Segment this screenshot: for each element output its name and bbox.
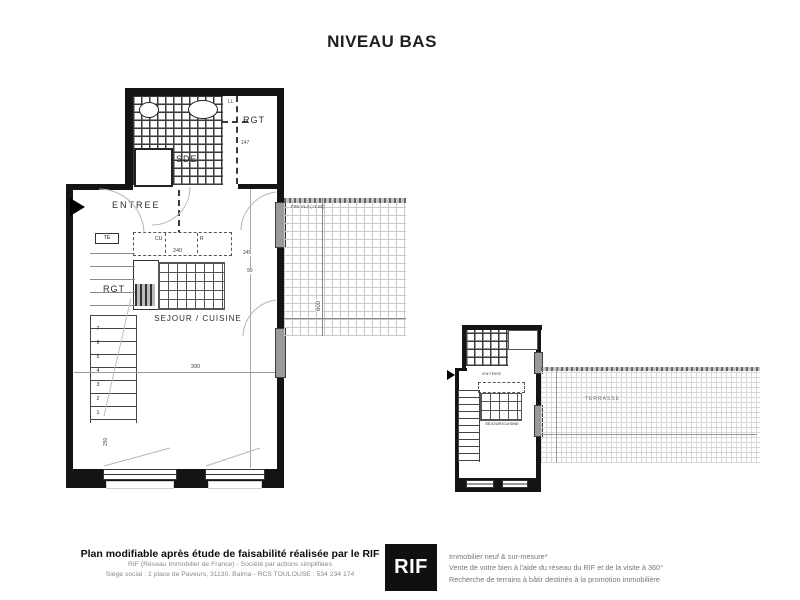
- footer-right-line1: Immobilier neuf & sur-mesure*: [449, 551, 759, 562]
- footer-company-line: RIF (Réseau Immobilier de France) - Soci…: [80, 560, 380, 570]
- small-window-right: [502, 480, 528, 488]
- main-wall-right: [277, 88, 284, 488]
- window-bottom-left: [103, 469, 177, 480]
- floorplan-sheet: { "title": "NIVEAU BAS", "main_plan": { …: [0, 0, 800, 600]
- main-wall-top: [125, 88, 284, 96]
- bath-rgt-partition: [236, 96, 238, 184]
- footer-address-line: Siège social : 1 place de Paveurs, 31130…: [80, 570, 380, 580]
- step-number: 1: [93, 410, 103, 416]
- room-label-rgt-top: RGT: [243, 115, 265, 125]
- partition-line-right: [250, 189, 251, 468]
- counter-divider-2: [197, 233, 198, 253]
- step-number: 2: [93, 396, 103, 402]
- appliance-hatch: [135, 284, 155, 306]
- terrace-small-hatch: [541, 367, 760, 371]
- terrace-main-hatch: [284, 198, 406, 203]
- counter-divider-1: [165, 233, 166, 253]
- small-room-label-entree: ENTREE: [472, 371, 512, 376]
- entree-dashed-divider: [178, 190, 180, 236]
- window-tag-left: [106, 481, 174, 489]
- room-label-rgt-stairs: RGT: [103, 284, 125, 294]
- footer-right-block: Immobilier neuf & sur-mesure* Vente de v…: [449, 551, 759, 585]
- step-number: 5: [93, 354, 103, 360]
- main-wall-rgt-bottom: [238, 184, 277, 189]
- step-number: 6: [93, 340, 103, 346]
- main-wall-left: [66, 184, 73, 469]
- kitchen-floor-tiles: [158, 262, 225, 310]
- step-number: 3: [93, 382, 103, 388]
- room-label-entree: ENTREE: [112, 200, 161, 210]
- small-room-label-sejour: SEJOUR/CUISINE: [478, 421, 526, 426]
- small-rgt-box: [508, 330, 538, 350]
- dim-390: 390: [190, 364, 201, 370]
- small-window-left: [466, 480, 494, 488]
- footer-right-line2: Vente de votre bien à l'aide du réseau d…: [449, 562, 759, 573]
- dim-line-390: [74, 372, 277, 373]
- main-wall-bath-left: [125, 88, 133, 186]
- dim-147: 147: [240, 140, 250, 146]
- fridge-label: R: [200, 236, 204, 242]
- rif-logo: RIF: [385, 544, 437, 591]
- dim-90: 90: [246, 268, 254, 274]
- terrace-main-hline: [284, 318, 406, 319]
- terrace-small-hline: [541, 434, 757, 435]
- small-bathroom-tiles: [466, 330, 508, 366]
- washer-label: LL: [228, 99, 234, 105]
- cu-label: CU: [155, 236, 162, 242]
- small-kitchen-counter: [478, 382, 525, 393]
- terrace-main: [284, 198, 406, 336]
- entrance-arrow-icon: [70, 198, 85, 216]
- step-number: 7: [93, 326, 103, 332]
- main-wall-entry-ledge: [66, 184, 133, 190]
- te-box: TE: [95, 233, 119, 244]
- window-bottom-right: [205, 469, 265, 480]
- terrace-small: [541, 367, 760, 463]
- small-staircase: [458, 390, 480, 462]
- window-tag-right: [208, 481, 262, 489]
- page-title: NIVEAU BAS: [282, 32, 482, 52]
- small-entrance-arrow-icon: [447, 370, 455, 380]
- dim-240: 240: [172, 248, 183, 254]
- sink-icon: [188, 100, 218, 119]
- footer-bold-line: Plan modifiable après étude de faisabili…: [80, 548, 380, 560]
- room-label-sde: SDE: [176, 154, 198, 164]
- terrace-main-vline: [322, 198, 323, 336]
- room-label-sejour: SEJOUR / CUISINE: [152, 314, 244, 323]
- terrace-small-vline: [556, 367, 557, 463]
- terrace-label: TERRASSE: [585, 396, 620, 402]
- dim-250: 250: [103, 437, 109, 447]
- footer-left-block: Plan modifiable après étude de faisabili…: [80, 548, 380, 580]
- small-kitchen-tiles: [480, 393, 522, 421]
- small-wall-ledge: [455, 368, 467, 371]
- footer-right-line3: Recherche de terrains à bâtir destinés à…: [449, 574, 759, 585]
- terrace-note: FINI VLA (+1.80): [291, 204, 325, 209]
- shower-icon: [134, 148, 173, 187]
- dim-245: 245: [242, 250, 252, 256]
- toilet-icon: [139, 102, 159, 118]
- dim-600: 600: [316, 300, 322, 312]
- step-number: 4: [93, 368, 103, 374]
- rif-logo-text: RIF: [394, 556, 428, 579]
